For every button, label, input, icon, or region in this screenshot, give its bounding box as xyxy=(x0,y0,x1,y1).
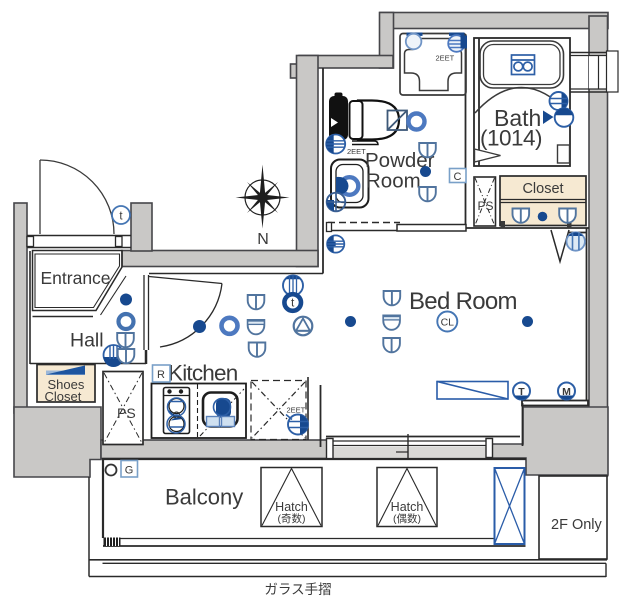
svg-text:Closet: Closet xyxy=(45,389,82,404)
svg-text:(偶数): (偶数) xyxy=(393,512,421,525)
svg-text:Hatch: Hatch xyxy=(275,500,308,514)
svg-text:Hatch: Hatch xyxy=(391,500,424,514)
svg-text:CL: CL xyxy=(441,317,455,329)
svg-text:C: C xyxy=(454,171,462,183)
svg-text:ガラス手摺: ガラス手摺 xyxy=(264,582,331,597)
svg-text:Hall: Hall xyxy=(70,330,104,352)
svg-text:PS: PS xyxy=(117,405,136,421)
svg-text:PS: PS xyxy=(478,199,494,213)
svg-text:(奇数): (奇数) xyxy=(278,512,306,525)
svg-text:(1014): (1014) xyxy=(480,126,542,151)
svg-text:Balcony: Balcony xyxy=(165,485,243,510)
svg-text:2F Only: 2F Only xyxy=(551,517,603,533)
svg-text:Bed Room: Bed Room xyxy=(409,288,517,315)
svg-text:N: N xyxy=(257,231,269,248)
svg-text:Room: Room xyxy=(366,170,421,193)
svg-text:Entrance: Entrance xyxy=(41,268,111,288)
svg-text:2EET: 2EET xyxy=(436,54,455,63)
svg-text:M: M xyxy=(562,386,571,398)
svg-text:G: G xyxy=(125,465,134,477)
svg-text:Kitchen: Kitchen xyxy=(168,361,238,386)
svg-text:Closet: Closet xyxy=(522,181,563,197)
svg-text:T: T xyxy=(518,386,525,398)
svg-text:2EET: 2EET xyxy=(287,406,306,415)
svg-text:2EET: 2EET xyxy=(347,147,366,156)
svg-text:R: R xyxy=(157,369,165,381)
